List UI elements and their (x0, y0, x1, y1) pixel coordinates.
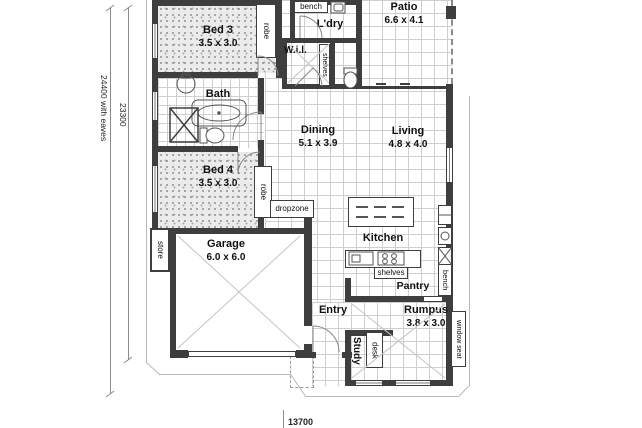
laundry-bench-label: bench (300, 3, 322, 11)
dimension-label-bottom: 13700 (288, 417, 313, 427)
laundry-bench: bench (294, 1, 328, 13)
dimension-line-left-inner (128, 8, 129, 360)
wall-entry-bottom-left (302, 352, 316, 358)
wall-bed3-bottom (152, 72, 258, 78)
study-name: Study (351, 337, 361, 365)
room-label-dining: Dining 5.1 x 3.9 (272, 124, 364, 150)
dimension-label-left-outer: 24400 with eaves (99, 75, 109, 141)
room-label-study: Study (351, 337, 365, 381)
wall-bath-bottom (152, 146, 238, 152)
kitchen-side-bench-label: bench (441, 270, 449, 290)
floor-plan: bench robe robe shelves store dropzone s… (0, 0, 642, 428)
fridge (438, 205, 452, 225)
kitchen-shelves: shelves (374, 267, 408, 279)
bed3-name: Bed 3 (168, 24, 268, 38)
dropzone: dropzone (270, 200, 314, 218)
wall-pantry-left (345, 278, 351, 302)
room-label-pantry: Pantry (388, 280, 438, 293)
room-label-garage: Garage 6.0 x 6.0 (176, 238, 276, 264)
living-size: 4.8 x 4.0 (362, 139, 454, 152)
dining-size: 5.1 x 3.9 (272, 138, 364, 151)
room-label-laundry: L'dry (300, 18, 360, 32)
sliding-door-patio (362, 86, 446, 89)
entry-name: Entry (311, 304, 355, 318)
kitchen-shelves-label: shelves (377, 269, 404, 277)
store-label: store (156, 241, 164, 259)
room-label-kitchen: Kitchen (348, 232, 418, 246)
bed4-size: 3.5 x 3.0 (168, 178, 268, 191)
garage-size: 6.0 x 6.0 (176, 252, 276, 265)
window-bath (153, 92, 157, 120)
kitchen-back-bench (345, 250, 421, 268)
eaves-line-bottom-right (306, 396, 459, 397)
eaves-line-right (469, 96, 470, 386)
dimension-label-left-inner: 23300 (118, 103, 128, 127)
room-label-linen: W.i.l. (284, 45, 324, 58)
window-study (356, 381, 382, 385)
pantry-door-opening (424, 297, 442, 301)
patio-size: 6.6 x 4.1 (362, 15, 446, 28)
laundry-name: L'dry (300, 18, 360, 32)
window-bed4 (153, 166, 157, 212)
linen-name: W.i.l. (284, 45, 324, 58)
dining-name: Dining (272, 124, 364, 138)
patio-post (446, 6, 456, 19)
eaves-line-bottom-left (159, 374, 291, 375)
wall-entry-left-stub (304, 344, 312, 352)
patio-name: Patio (362, 1, 446, 15)
bath-name: Bath (188, 88, 248, 102)
bed3-size: 3.5 x 3.0 (168, 38, 268, 51)
dimension-tick-bottom (283, 410, 284, 428)
dropzone-label: dropzone (275, 205, 308, 213)
kitchen-name: Kitchen (348, 232, 418, 246)
room-label-entry: Entry (311, 304, 355, 318)
rumpus-name: Rumpus (390, 304, 462, 318)
dimension-line-left-outer (110, 8, 111, 394)
room-label-bed4: Bed 4 3.5 x 3.0 (168, 164, 268, 190)
study-desk: desk (366, 332, 383, 368)
wall-garage-bottom-left (170, 350, 188, 358)
window-bed3 (153, 24, 157, 58)
kitchen-sink (438, 247, 452, 265)
eaves-line-left (146, 0, 147, 362)
garage-door (188, 351, 296, 357)
room-label-patio: Patio 6.6 x 4.1 (362, 1, 446, 27)
porch-outline (290, 356, 314, 388)
wall-laundry-bottom (282, 38, 362, 43)
window-rumpus (396, 381, 430, 385)
store-cupboard: store (150, 228, 170, 272)
garage-name: Garage (176, 238, 276, 252)
wall-linen-right (330, 42, 335, 89)
study-desk-label: desk (371, 342, 379, 359)
window-living (447, 148, 452, 182)
pantry-name: Pantry (388, 280, 438, 293)
kitchen-island (348, 197, 414, 227)
room-label-rumpus: Rumpus 3.8 x 3.0 (390, 304, 462, 330)
rumpus-size: 3.8 x 3.0 (390, 318, 462, 331)
room-label-living: Living 4.8 x 4.0 (362, 125, 454, 151)
kitchen-side-bench: bench (438, 264, 452, 296)
cooktop-right (438, 227, 452, 245)
living-name: Living (362, 125, 454, 139)
bed4-name: Bed 4 (168, 164, 268, 178)
wall-bath-right-upper (258, 78, 264, 114)
room-label-bed3: Bed 3 3.5 x 3.0 (168, 24, 268, 50)
room-label-bath: Bath (188, 88, 248, 102)
